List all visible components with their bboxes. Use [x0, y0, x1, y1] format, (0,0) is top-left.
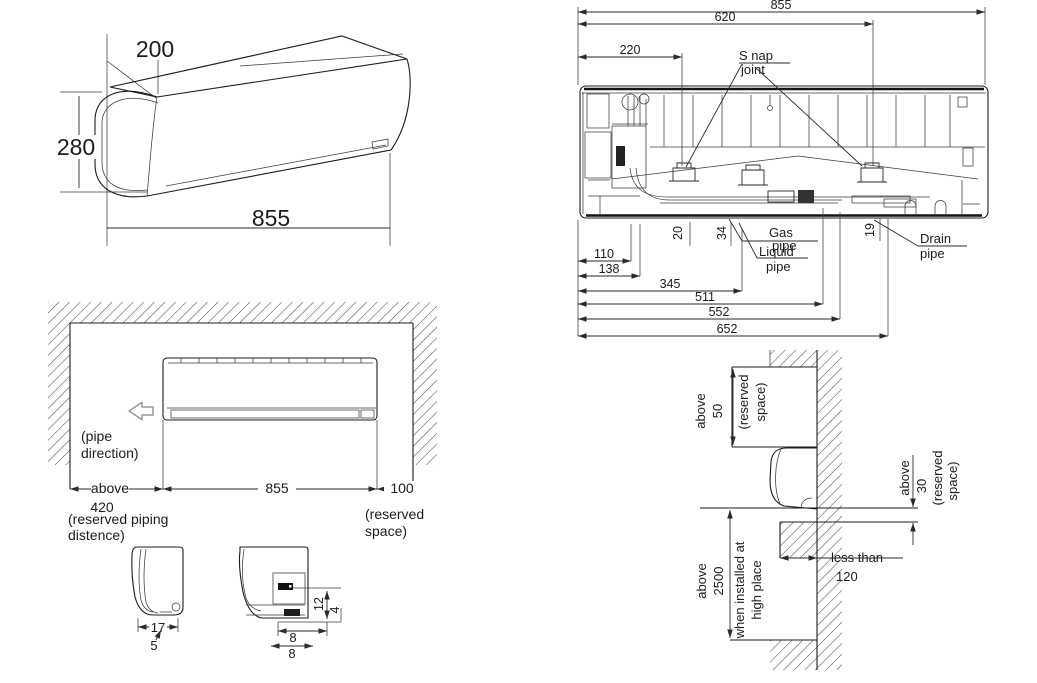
unit-rear-view: 855 620 220 S nap joint 110 138 345 511 … [578, 0, 988, 336]
detail-front-curve [144, 549, 158, 613]
dim-4-label: 4 [328, 606, 342, 613]
rear-view-internal-parts [585, 94, 980, 214]
wall-hatch [817, 350, 842, 670]
high-place-note-1: when installed at [732, 541, 747, 639]
extension-line [631, 208, 888, 336]
dim-220-label: 220 [620, 43, 641, 57]
detail-view-side: 17 5 [132, 547, 183, 653]
snap-joint-label-1: S nap [739, 48, 773, 63]
unit-front-outline [163, 358, 377, 420]
reserved-piping-label-2: distence) [68, 527, 125, 543]
dim-280-label: 280 [57, 134, 95, 160]
detail-front-curve [242, 549, 261, 611]
floor-hatch [770, 640, 842, 670]
wall-inner-lines [70, 323, 413, 489]
detail-outline [239, 547, 308, 618]
pipe-direction-label-2: direction) [81, 445, 139, 461]
snap-joint-leaders [686, 64, 862, 167]
dim-855-label: 855 [252, 205, 290, 231]
dim-855-front-label: 855 [265, 480, 289, 496]
snap-joint-middle [738, 165, 768, 185]
dim-855-total-label: 855 [771, 0, 792, 12]
right-reserved-label-1: (reserved [930, 451, 945, 506]
installation-front-view: (pipe direction) above 420 855 100 (rese… [48, 302, 437, 661]
above-2500-label-2: 2500 [711, 567, 726, 596]
unit-grille-ticks [181, 358, 361, 363]
ac-dimension-diagram: 200 280 855 [0, 0, 1037, 683]
pipe-end-circle [639, 94, 649, 104]
less-than-label: less than [831, 550, 883, 565]
dim-652-label: 652 [717, 322, 738, 336]
heat-exchanger-ribs [664, 95, 950, 147]
extension-line [278, 622, 327, 636]
unit-top-fold-line [240, 54, 403, 66]
unit-side-detail [801, 498, 812, 508]
above-30-label-1: above [897, 460, 912, 495]
reserved-space-label-1: (reserved [365, 506, 424, 522]
unit-outline [580, 86, 988, 218]
above-label: above [91, 480, 129, 496]
dim-34-label: 34 [715, 226, 729, 240]
drain-pipe-label-2: pipe [920, 246, 945, 261]
unit-outlet-line [166, 145, 386, 186]
unit-vane [171, 410, 359, 418]
top-reserved-label-2: space) [753, 382, 768, 421]
dim-552-label: 552 [709, 305, 730, 319]
unit-3d-view: 200 280 855 [54, 34, 410, 246]
pipe-run-1 [630, 168, 930, 197]
dim-19-label: 19 [863, 223, 877, 237]
component-lines [588, 180, 640, 214]
unit-top-left-edge [110, 87, 157, 97]
component-box [585, 132, 611, 178]
liquid-pipe-label-2: pipe [766, 259, 791, 274]
installation-side-view: above 50 (reserved space) above 30 (rese… [693, 350, 960, 670]
dim-138-label: 138 [599, 262, 620, 276]
wall-hatch-left [48, 323, 70, 465]
pipe-end-circle [622, 94, 638, 110]
unit-vane-end [361, 410, 374, 418]
component-dark [616, 146, 625, 166]
dim-5-label: 5 [150, 638, 157, 653]
dim-620-label: 620 [715, 10, 736, 24]
dim-120-label: 120 [836, 569, 858, 584]
high-place-note-2: high place [749, 560, 764, 619]
unit-top-front-edge [157, 59, 407, 97]
dim-8b-label: 8 [288, 646, 295, 661]
dim-17-label: 17 [151, 620, 165, 635]
dim-20-label: 20 [671, 226, 685, 240]
extension-line [163, 420, 377, 489]
dim-511-label: 511 [695, 290, 715, 304]
dim-8a-label: 8 [289, 630, 296, 645]
detail-view-pipe-exit: 12 4 8 8 [239, 547, 342, 661]
pipe-direction-label-1: (pipe [81, 428, 112, 444]
unit-left-cap [95, 91, 157, 197]
dim-12-label: 12 [312, 597, 326, 611]
snap-joint-left [669, 163, 699, 181]
extension-line [107, 61, 156, 98]
obstacle-hatch [780, 522, 817, 558]
unit-left-cap-inner [102, 98, 158, 190]
component-box [587, 94, 609, 128]
detail-corner-circle [172, 603, 180, 611]
sensor-tip [768, 106, 773, 111]
above-50-label-1: above [693, 393, 708, 428]
pipe-risers [612, 96, 648, 126]
detail-outline [132, 547, 183, 615]
above-30-label-2: 30 [914, 479, 929, 493]
above-2500-label-1: above [694, 563, 709, 598]
dim-110-label: 110 [594, 247, 614, 261]
dim-100-label: 100 [390, 480, 414, 496]
liquid-pipe-label-1: Liquid [759, 244, 794, 259]
right-end-detail [958, 97, 967, 107]
unit-cap-joint [147, 97, 157, 196]
unit-front-face [147, 59, 410, 196]
right-end-cap [962, 180, 980, 214]
wall-hatch-right [413, 323, 437, 465]
reserved-space-label-2: space) [365, 523, 407, 539]
unit-side-outline [770, 448, 817, 509]
dim-200-label: 200 [136, 36, 174, 62]
pipe-direction-arrow-icon [129, 403, 153, 420]
detail-dark-block [284, 609, 300, 616]
dim-345-label: 345 [660, 277, 681, 291]
reserved-piping-label-1: (reserved piping [68, 511, 168, 527]
diagram-page: 200 280 855 [0, 0, 1037, 683]
right-reserved-label-2: space) [945, 461, 960, 500]
top-reserved-label-1: (reserved [736, 375, 751, 430]
right-end-detail [963, 148, 973, 166]
snap-joint-label-2: joint [740, 62, 765, 77]
drain-pan-edge [612, 156, 978, 179]
unit-side-curve [776, 449, 781, 504]
pipe-exit-dot [289, 585, 292, 588]
wall-hatch-top [48, 302, 437, 323]
above-50-label-2: 50 [710, 404, 725, 418]
snap-joint-brackets [669, 163, 887, 185]
drain-pipe-label-1: Drain [920, 231, 951, 246]
gas-pipe-fitting [798, 190, 814, 203]
